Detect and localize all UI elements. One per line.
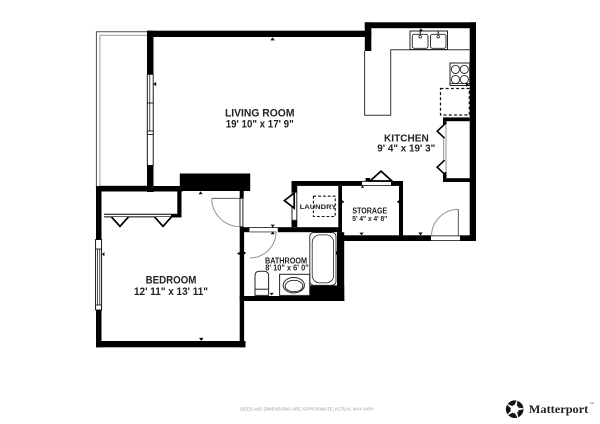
svg-text:12' 11" x 13' 11": 12' 11" x 13' 11" xyxy=(134,286,208,298)
svg-text:LAUNDRY: LAUNDRY xyxy=(300,204,337,211)
svg-text:19' 10" x 17' 9": 19' 10" x 17' 9" xyxy=(226,118,294,130)
svg-text:9' 4" x 19' 3": 9' 4" x 19' 3" xyxy=(377,144,435,155)
svg-text:SIZES AND DIMENSIONS ARE APPRO: SIZES AND DIMENSIONS ARE APPROXIMATE, AC… xyxy=(240,406,375,411)
svg-text:5' 4" x 4' 8": 5' 4" x 4' 8" xyxy=(352,214,387,223)
svg-text:Matterport: Matterport xyxy=(529,402,589,416)
svg-text:™: ™ xyxy=(590,401,594,406)
svg-text:8' 10" x 6' 0": 8' 10" x 6' 0" xyxy=(265,264,309,273)
svg-text:BEDROOM: BEDROOM xyxy=(146,275,197,287)
